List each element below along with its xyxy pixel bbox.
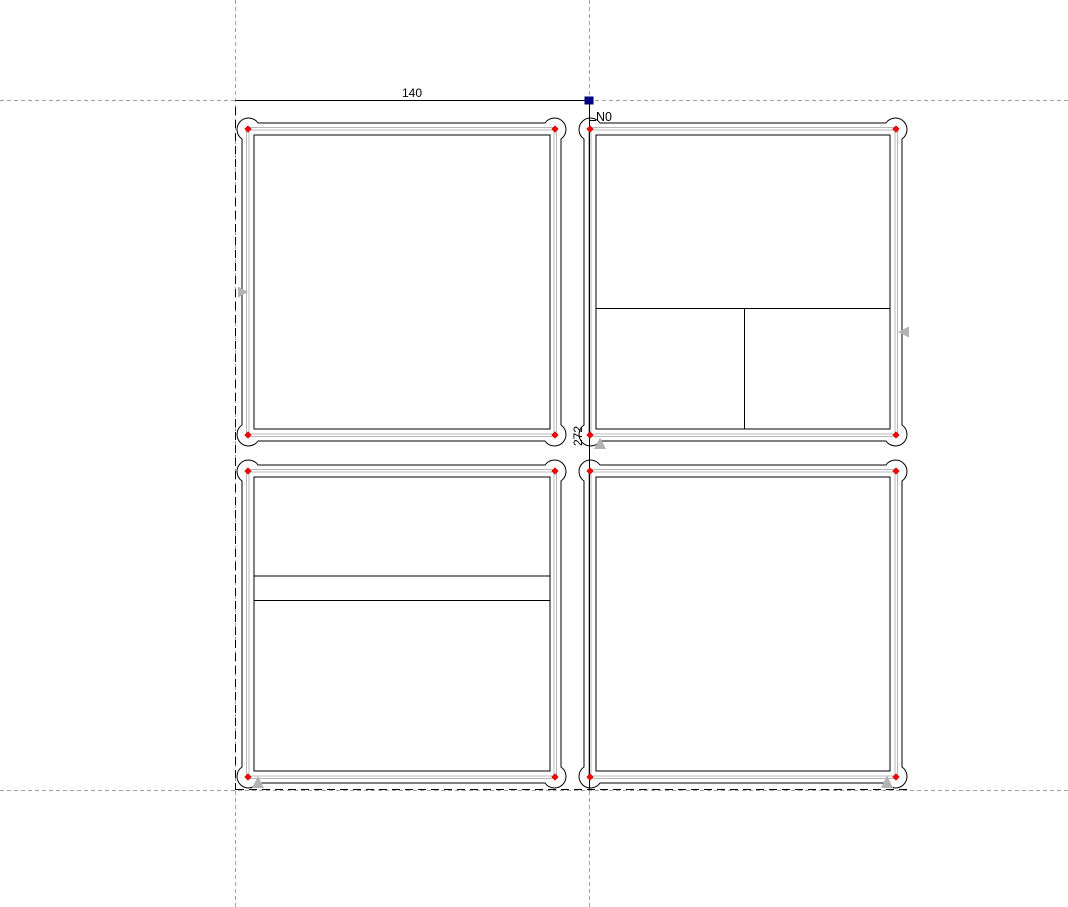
corner-handle[interactable] <box>587 432 593 438</box>
part-outline-inner <box>591 472 895 776</box>
cad-canvas[interactable]: 140 272 N0 <box>0 0 1068 907</box>
corner-handle[interactable] <box>552 774 558 780</box>
cut-contour[interactable] <box>237 460 566 788</box>
part-outline-outer <box>247 128 557 437</box>
part-outline-outer <box>589 128 898 437</box>
corner-handle[interactable] <box>552 126 558 132</box>
arrow-up-icon <box>881 776 893 789</box>
part-outline-inner <box>591 130 895 434</box>
corner-handle[interactable] <box>587 126 593 132</box>
corner-handle[interactable] <box>245 432 251 438</box>
corner-handle[interactable] <box>552 468 558 474</box>
corner-handle[interactable] <box>587 468 593 474</box>
arrow-up-icon <box>252 776 264 788</box>
corner-handle[interactable] <box>893 432 899 438</box>
panel-face[interactable] <box>596 477 890 771</box>
corner-handle[interactable] <box>893 468 899 474</box>
panel-face[interactable] <box>254 477 550 771</box>
cut-contour[interactable] <box>579 118 907 446</box>
part-outline-inner <box>249 130 554 434</box>
orientation-arrows <box>238 287 909 789</box>
arrow-up-icon <box>594 438 606 450</box>
corner-handle[interactable] <box>893 774 899 780</box>
part-outline-inner <box>249 472 554 776</box>
cut-contour[interactable] <box>579 460 907 788</box>
arrow-left-icon <box>898 327 909 338</box>
sheet-edges <box>236 107 911 790</box>
cut-contour[interactable] <box>237 118 566 446</box>
part-outline-outer <box>589 470 898 779</box>
part-outline-outer <box>247 470 557 779</box>
corner-handle[interactable] <box>587 774 593 780</box>
origin-node-label: N0 <box>596 110 612 124</box>
panel-top-left[interactable] <box>237 118 566 446</box>
panel-face[interactable] <box>254 135 550 429</box>
corner-handle[interactable] <box>893 126 899 132</box>
corner-handle[interactable] <box>245 468 251 474</box>
panel-face[interactable] <box>596 135 890 429</box>
corner-handles <box>245 126 899 780</box>
corner-handle[interactable] <box>552 432 558 438</box>
corner-handle[interactable] <box>245 126 251 132</box>
panel-bottom-left[interactable] <box>237 460 566 788</box>
panel-top-right[interactable] <box>579 118 907 446</box>
corner-handle[interactable] <box>245 774 251 780</box>
dimension-width-label: 140 <box>402 86 422 100</box>
drawing-canvas[interactable]: 140 272 N0 <box>0 0 1068 907</box>
origin-square-marker[interactable] <box>585 97 593 104</box>
panel-bottom-right[interactable] <box>579 460 907 788</box>
